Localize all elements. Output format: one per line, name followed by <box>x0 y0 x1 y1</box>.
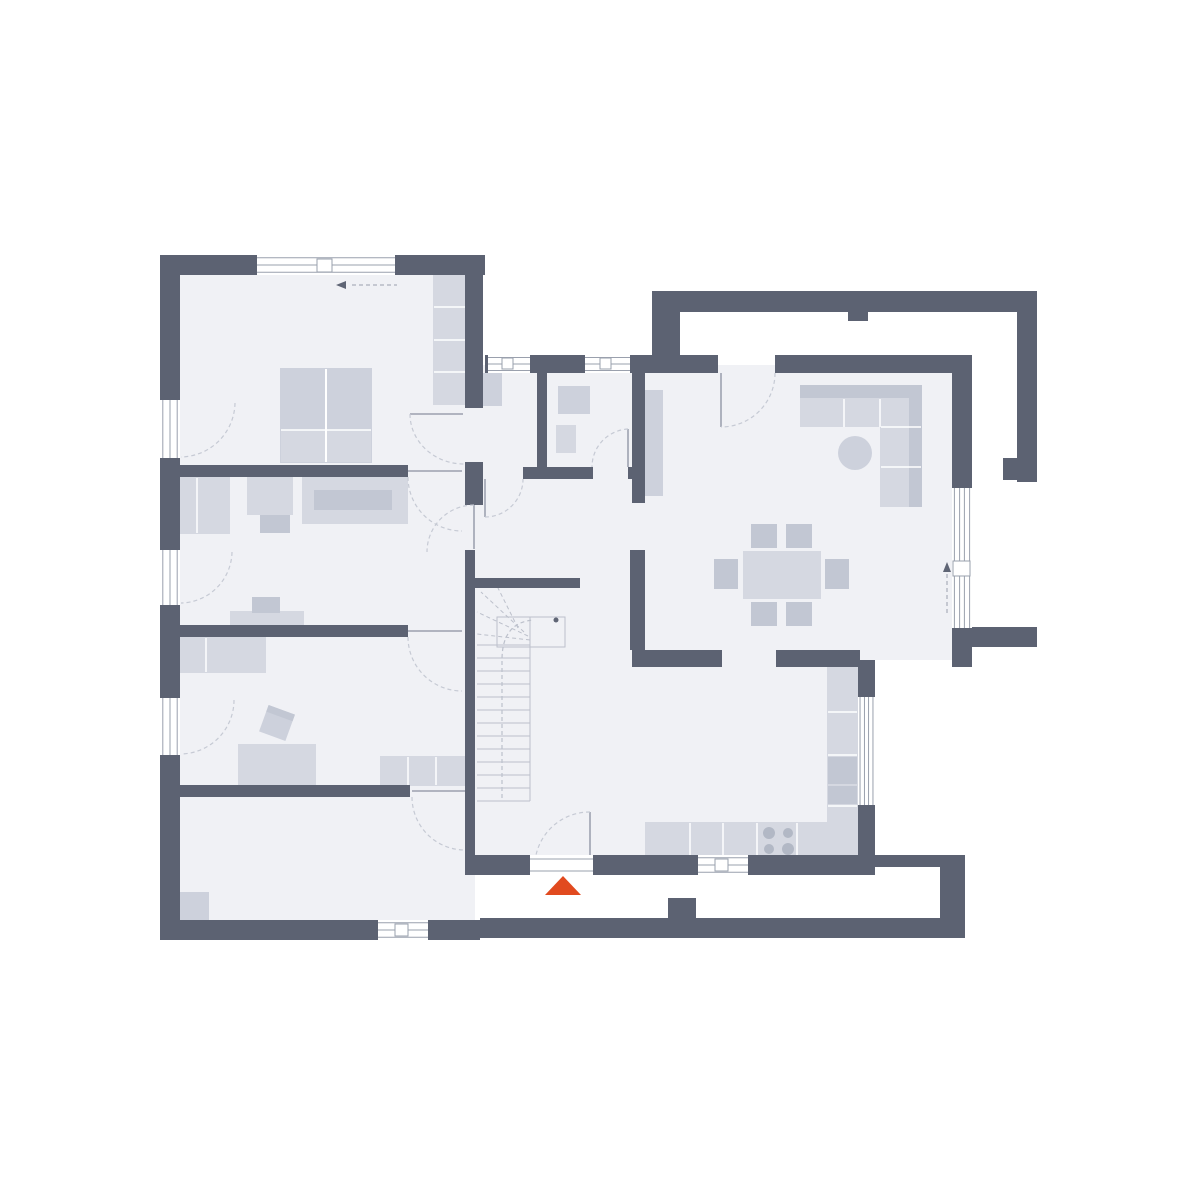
dining-chair-top-2 <box>786 524 812 548</box>
window-wc2-symbol <box>600 358 611 369</box>
wall-office-bottom <box>160 785 410 797</box>
window-wc1-symbol <box>502 358 513 369</box>
wc2-toilet <box>556 425 576 453</box>
dressing-unit-middle-2 <box>260 515 290 533</box>
dressing-wardrobe-rail <box>314 490 392 510</box>
wall-living-top-b <box>775 355 972 373</box>
hall-cabinet <box>645 390 663 496</box>
wall-terrace-right <box>1017 291 1037 482</box>
office-sideboard <box>380 756 465 786</box>
dining-chair-top-1 <box>751 524 777 548</box>
wall-wc-bottom-a <box>523 467 593 479</box>
wall-kitchen-right-b <box>858 805 875 875</box>
utility-appliance <box>178 892 209 921</box>
cooktop-burner-1 <box>763 827 775 839</box>
floor-plan-canvas <box>0 0 1200 1200</box>
window-utility-bottom-symbol <box>395 924 408 936</box>
dining-chair-left <box>714 559 738 589</box>
wall-hall-dining <box>630 550 645 650</box>
dining-chair-bottom-2 <box>786 602 812 626</box>
window-living-slider <box>952 488 972 628</box>
cooktop-burner-3 <box>764 844 774 854</box>
wall-porch-top <box>875 855 940 867</box>
sofa-back-vertical <box>909 385 922 507</box>
kitchen-appliance-2 <box>828 786 857 804</box>
wall-porch-pier <box>668 898 696 918</box>
stair-walk-dot <box>554 618 559 623</box>
dressing-unit-middle <box>247 477 293 515</box>
kitchen-counter-bottom <box>645 822 827 858</box>
dining-chair-right <box>825 559 849 589</box>
floor-left-wing <box>170 465 475 930</box>
wall-kitchen-top-a <box>632 650 722 667</box>
kitchen-appliance-1 <box>828 757 857 784</box>
wall-spine-b <box>465 462 483 505</box>
wall-porch-bottom <box>480 918 965 938</box>
wall-dressing-office <box>160 625 408 637</box>
wall-stairs-top <box>465 578 580 588</box>
cooktop-burner-4 <box>782 843 794 855</box>
wall-entrance-b <box>593 855 635 875</box>
wall-kitchen-bottom-a <box>635 855 698 875</box>
dressing-wardrobe-left <box>178 477 230 534</box>
wall-wc-divider <box>537 373 547 467</box>
wall-porch-right <box>940 855 965 938</box>
office-shelf <box>178 637 266 673</box>
wall-living-top-a <box>680 355 718 373</box>
wall-terrace-post <box>848 312 868 321</box>
office-desk <box>238 744 316 786</box>
sofa-back-horizontal <box>800 385 922 398</box>
cooktop-burner-2 <box>783 828 793 838</box>
wall-terrace-top <box>652 291 1037 312</box>
dining-table <box>743 551 821 599</box>
wall-spine-c <box>465 550 475 855</box>
wc2-sink <box>558 386 590 414</box>
coffee-table <box>838 436 872 470</box>
wall-kitchen-bottom-b <box>748 855 858 875</box>
wall-kitchen-top-b <box>776 650 860 667</box>
wall-living-right-a <box>952 373 972 488</box>
window-bedroom-top-symbol <box>317 259 332 272</box>
window-kitchen-right <box>858 697 875 805</box>
wall-bedroom-dressing <box>160 465 408 477</box>
wall-hall-living <box>632 373 645 503</box>
window-kitchen-bottom-symbol <box>715 859 728 871</box>
floor-plan-svg <box>0 0 1200 1200</box>
wall-entrance-a <box>465 855 530 875</box>
opening-entrance <box>530 855 593 875</box>
window-living-slider-symbol <box>953 561 970 576</box>
wall-spine-a <box>465 255 483 408</box>
wall-living-right-b <box>952 628 972 667</box>
entrance-marker <box>545 876 581 895</box>
wall-terrace-stub <box>1003 458 1017 480</box>
wall-kitchen-right-a <box>858 660 875 697</box>
wall-bottom-left <box>160 920 480 940</box>
dining-chair-bottom-1 <box>751 602 777 626</box>
dressing-chair <box>252 597 280 613</box>
